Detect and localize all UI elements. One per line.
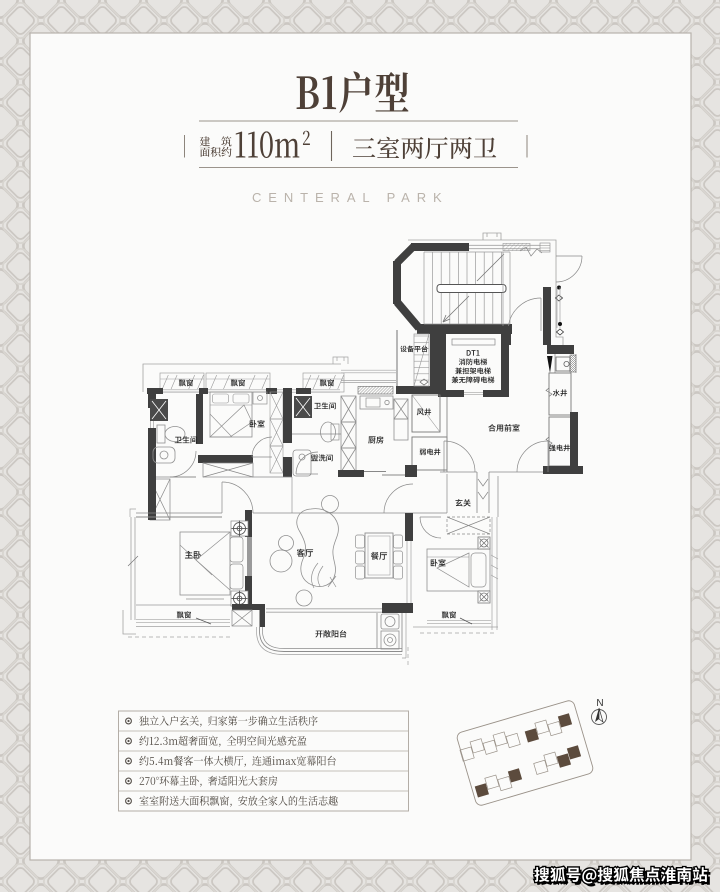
svg-text:CENTERAL PARK: CENTERAL PARK [252,190,449,205]
svg-text:N: N [596,698,603,709]
